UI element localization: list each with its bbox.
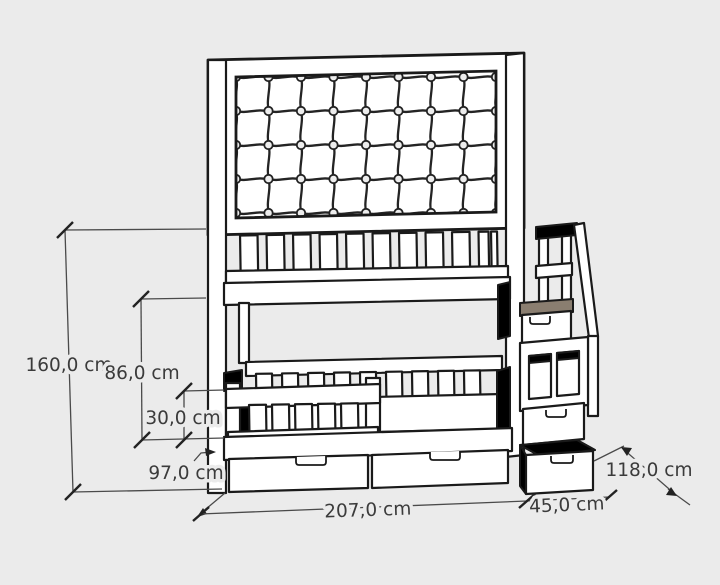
slat <box>438 371 454 397</box>
dim-label-guardrail-height: 30,0 cm <box>145 408 220 429</box>
underbed-drawers <box>224 428 512 492</box>
dim-label-total-height: 160,0 cm <box>25 355 112 376</box>
slat <box>426 232 444 269</box>
slat <box>452 232 470 269</box>
slat <box>272 404 289 432</box>
climbing-net-panel <box>208 53 524 235</box>
upper-bunk-platform <box>224 277 510 305</box>
slat <box>464 370 480 396</box>
lower-mattress-shadow <box>497 367 510 434</box>
handrail-top-rail <box>536 223 577 239</box>
stair-drawer-middle <box>523 403 584 445</box>
net-mesh <box>236 71 496 218</box>
slat <box>373 233 391 270</box>
slat <box>249 405 266 433</box>
slat <box>491 231 498 268</box>
slat <box>386 372 402 398</box>
dim-stairs-width: 45,0 cm <box>519 490 617 518</box>
slat <box>293 234 311 271</box>
slat <box>240 235 258 272</box>
technical-drawing-canvas: 160,0 cm 86,0 cm 30,0 cm 97,0 cm <box>0 0 720 585</box>
drawer-handle-notch <box>296 456 326 465</box>
cubby-shelf-shadow <box>529 354 551 363</box>
slat <box>320 234 338 271</box>
dim-label-stairs-width: 45,0 cm <box>529 493 605 517</box>
dim-label-bed-depth: 97,0 cm <box>148 463 223 484</box>
drawer-handle-notch <box>530 316 550 324</box>
upper-mattress-shadow <box>498 282 510 339</box>
slat <box>399 233 417 270</box>
dim-label-total-depth: 118,0 cm <box>605 460 692 481</box>
dim-label-upper-bunk-height: 86,0 cm <box>104 363 179 384</box>
bunk-bed-drawing: 160,0 cm 86,0 cm 30,0 cm 97,0 cm <box>0 0 720 585</box>
slat <box>346 234 364 271</box>
slat <box>479 232 490 269</box>
handrail-end-post <box>588 336 598 416</box>
drawer-handle-notch <box>551 455 573 463</box>
inner-back-post <box>239 303 249 363</box>
slat <box>412 371 428 397</box>
drawer-handle-notch <box>546 409 566 417</box>
dim-label-bed-length: 207,0 cm <box>324 498 412 522</box>
drawer-handle-notch <box>430 451 460 460</box>
handrail-mid-rail <box>536 263 572 278</box>
slat <box>267 235 285 272</box>
slat <box>295 404 312 432</box>
cubby-shelf-shadow <box>557 351 579 360</box>
